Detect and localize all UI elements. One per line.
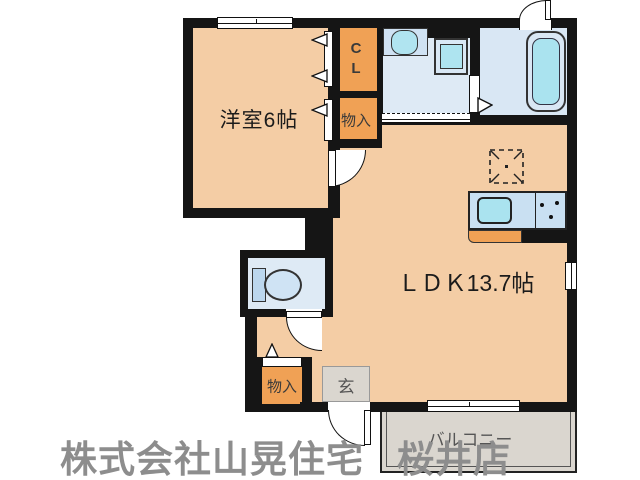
bath-door-swing-icon	[477, 97, 493, 114]
genkan-label: 玄	[338, 373, 355, 398]
storage-top-swing-icon	[311, 103, 328, 117]
watermark-branch: 桜井店	[397, 439, 511, 480]
overhead-cabinet-icon	[488, 148, 525, 185]
counter-edge	[468, 230, 522, 243]
kitchen-counter	[468, 191, 567, 230]
balcony-sliding-window	[427, 400, 520, 412]
stove-burner-icon	[549, 215, 553, 219]
ldk-western-door-leaf	[328, 150, 336, 187]
watermark: 株式会社山晃住宅桜井店	[60, 429, 511, 480]
bathtub-inner-icon	[532, 38, 560, 105]
entry-door-arc	[519, 0, 547, 20]
step-wall	[305, 218, 333, 253]
toilet-bowl-icon	[264, 269, 302, 301]
closet-door-swing-icon	[311, 69, 328, 83]
storage-bottom-sliding-door	[262, 357, 302, 367]
closet-door-swing-icon	[311, 33, 328, 47]
storage-bottom-swing-icon	[265, 343, 279, 358]
entry-door-leaf	[545, 0, 551, 20]
watermark-company: 株式会社山晃住宅	[60, 439, 364, 480]
kitchen-sink-icon	[477, 197, 512, 224]
stove-burner-icon	[540, 203, 544, 207]
vanity-bowl-icon	[391, 30, 418, 55]
toilet-door-leaf	[286, 311, 322, 318]
ldk-label: ＬＤＫ13.7帖	[398, 264, 535, 298]
washer-icon	[440, 44, 463, 69]
western-room-window	[217, 17, 293, 29]
western-room-label: 洋室6帖	[220, 104, 299, 134]
floorplan-canvas: 洋室6帖 ＬＤＫ13.7帖 CL 物入 物入 玄 バルコニー 株式会社山晃住宅桜…	[0, 0, 640, 480]
closet-cl-label: CL	[350, 39, 363, 80]
counter-divider	[535, 193, 536, 228]
wall-notch	[428, 28, 480, 38]
stove-burner-icon	[555, 201, 559, 205]
storage-bottom-label: 物入	[267, 376, 297, 397]
washroom-sliding-door	[382, 113, 470, 123]
storage-top-label: 物入	[341, 110, 371, 131]
counter-wall	[522, 230, 567, 243]
ldk-side-window	[565, 262, 577, 290]
